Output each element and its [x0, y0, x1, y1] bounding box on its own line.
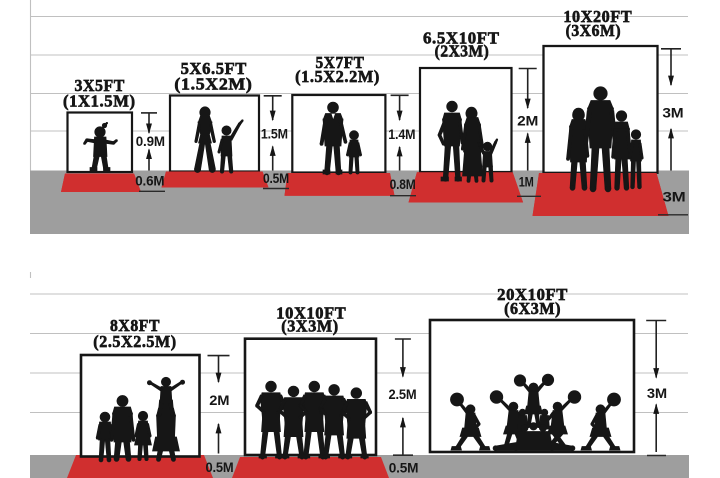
- svg-text:1M: 1M: [519, 173, 534, 189]
- svg-text:(6X3M): (6X3M): [504, 299, 561, 318]
- svg-text:(2X3M): (2X3M): [435, 42, 490, 61]
- svg-text:0.9M: 0.9M: [136, 133, 165, 149]
- svg-text:1.4M: 1.4M: [388, 126, 415, 142]
- svg-text:0.5M: 0.5M: [206, 459, 234, 475]
- svg-text:3M: 3M: [662, 104, 683, 120]
- svg-text:2.5M: 2.5M: [389, 386, 417, 402]
- svg-text:0.5M: 0.5M: [263, 170, 289, 186]
- svg-text:(1.5X2M): (1.5X2M): [174, 75, 252, 94]
- svg-text:(3X3M): (3X3M): [281, 317, 339, 336]
- svg-text:3M: 3M: [663, 188, 686, 204]
- svg-text:(3X6M): (3X6M): [566, 21, 622, 40]
- svg-text:(1.5X2.2M): (1.5X2.2M): [295, 67, 380, 86]
- svg-text:(2.5X2.5M): (2.5X2.5M): [93, 332, 176, 351]
- svg-text:0.8M: 0.8M: [390, 176, 416, 192]
- svg-text:(1X1.5M): (1X1.5M): [63, 92, 136, 111]
- svg-text:2M: 2M: [209, 392, 229, 408]
- svg-text:0.6M: 0.6M: [135, 173, 164, 189]
- svg-text:2M: 2M: [517, 112, 538, 128]
- svg-text:3M: 3M: [647, 385, 667, 401]
- svg-text:0.5M: 0.5M: [389, 460, 419, 476]
- svg-text:1.5M: 1.5M: [261, 126, 288, 142]
